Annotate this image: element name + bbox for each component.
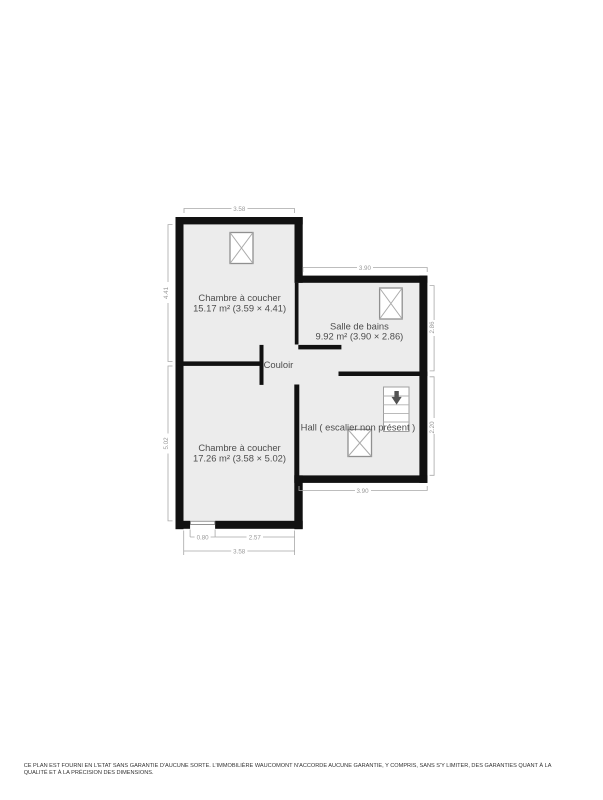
svg-text:CE PLAN EST FOURNI EN L'ETAT S: CE PLAN EST FOURNI EN L'ETAT SANS GARANT… (24, 762, 552, 769)
svg-text:3.90: 3.90 (356, 488, 369, 495)
svg-text:QUALITÉ ET À LA PRÉCISION DES: QUALITÉ ET À LA PRÉCISION DES DIMENSIONS… (24, 769, 154, 776)
svg-text:3.58: 3.58 (233, 549, 246, 556)
svg-text:0.80: 0.80 (197, 535, 210, 542)
svg-text:Chambre à coucher: Chambre à coucher (198, 442, 280, 453)
svg-text:2.57: 2.57 (249, 535, 262, 542)
svg-text:2.20: 2.20 (429, 421, 436, 434)
svg-text:4.41: 4.41 (163, 286, 170, 299)
svg-text:3.90: 3.90 (359, 265, 372, 272)
svg-text:Couloir: Couloir (264, 359, 294, 370)
svg-text:15.17 m² (3.59 × 4.41): 15.17 m² (3.59 × 4.41) (193, 303, 286, 314)
svg-text:Chambre à coucher: Chambre à coucher (198, 292, 280, 303)
svg-text:5.02: 5.02 (163, 437, 170, 450)
svg-text:17.26 m² (3.58 × 5.02): 17.26 m² (3.58 × 5.02) (193, 452, 286, 463)
svg-text:9.92 m² (3.90 × 2.86): 9.92 m² (3.90 × 2.86) (315, 331, 403, 342)
svg-text:3.58: 3.58 (233, 206, 246, 213)
svg-text:Hall ( escalier non présent ): Hall ( escalier non présent ) (301, 421, 416, 432)
svg-text:2.86: 2.86 (429, 321, 436, 334)
